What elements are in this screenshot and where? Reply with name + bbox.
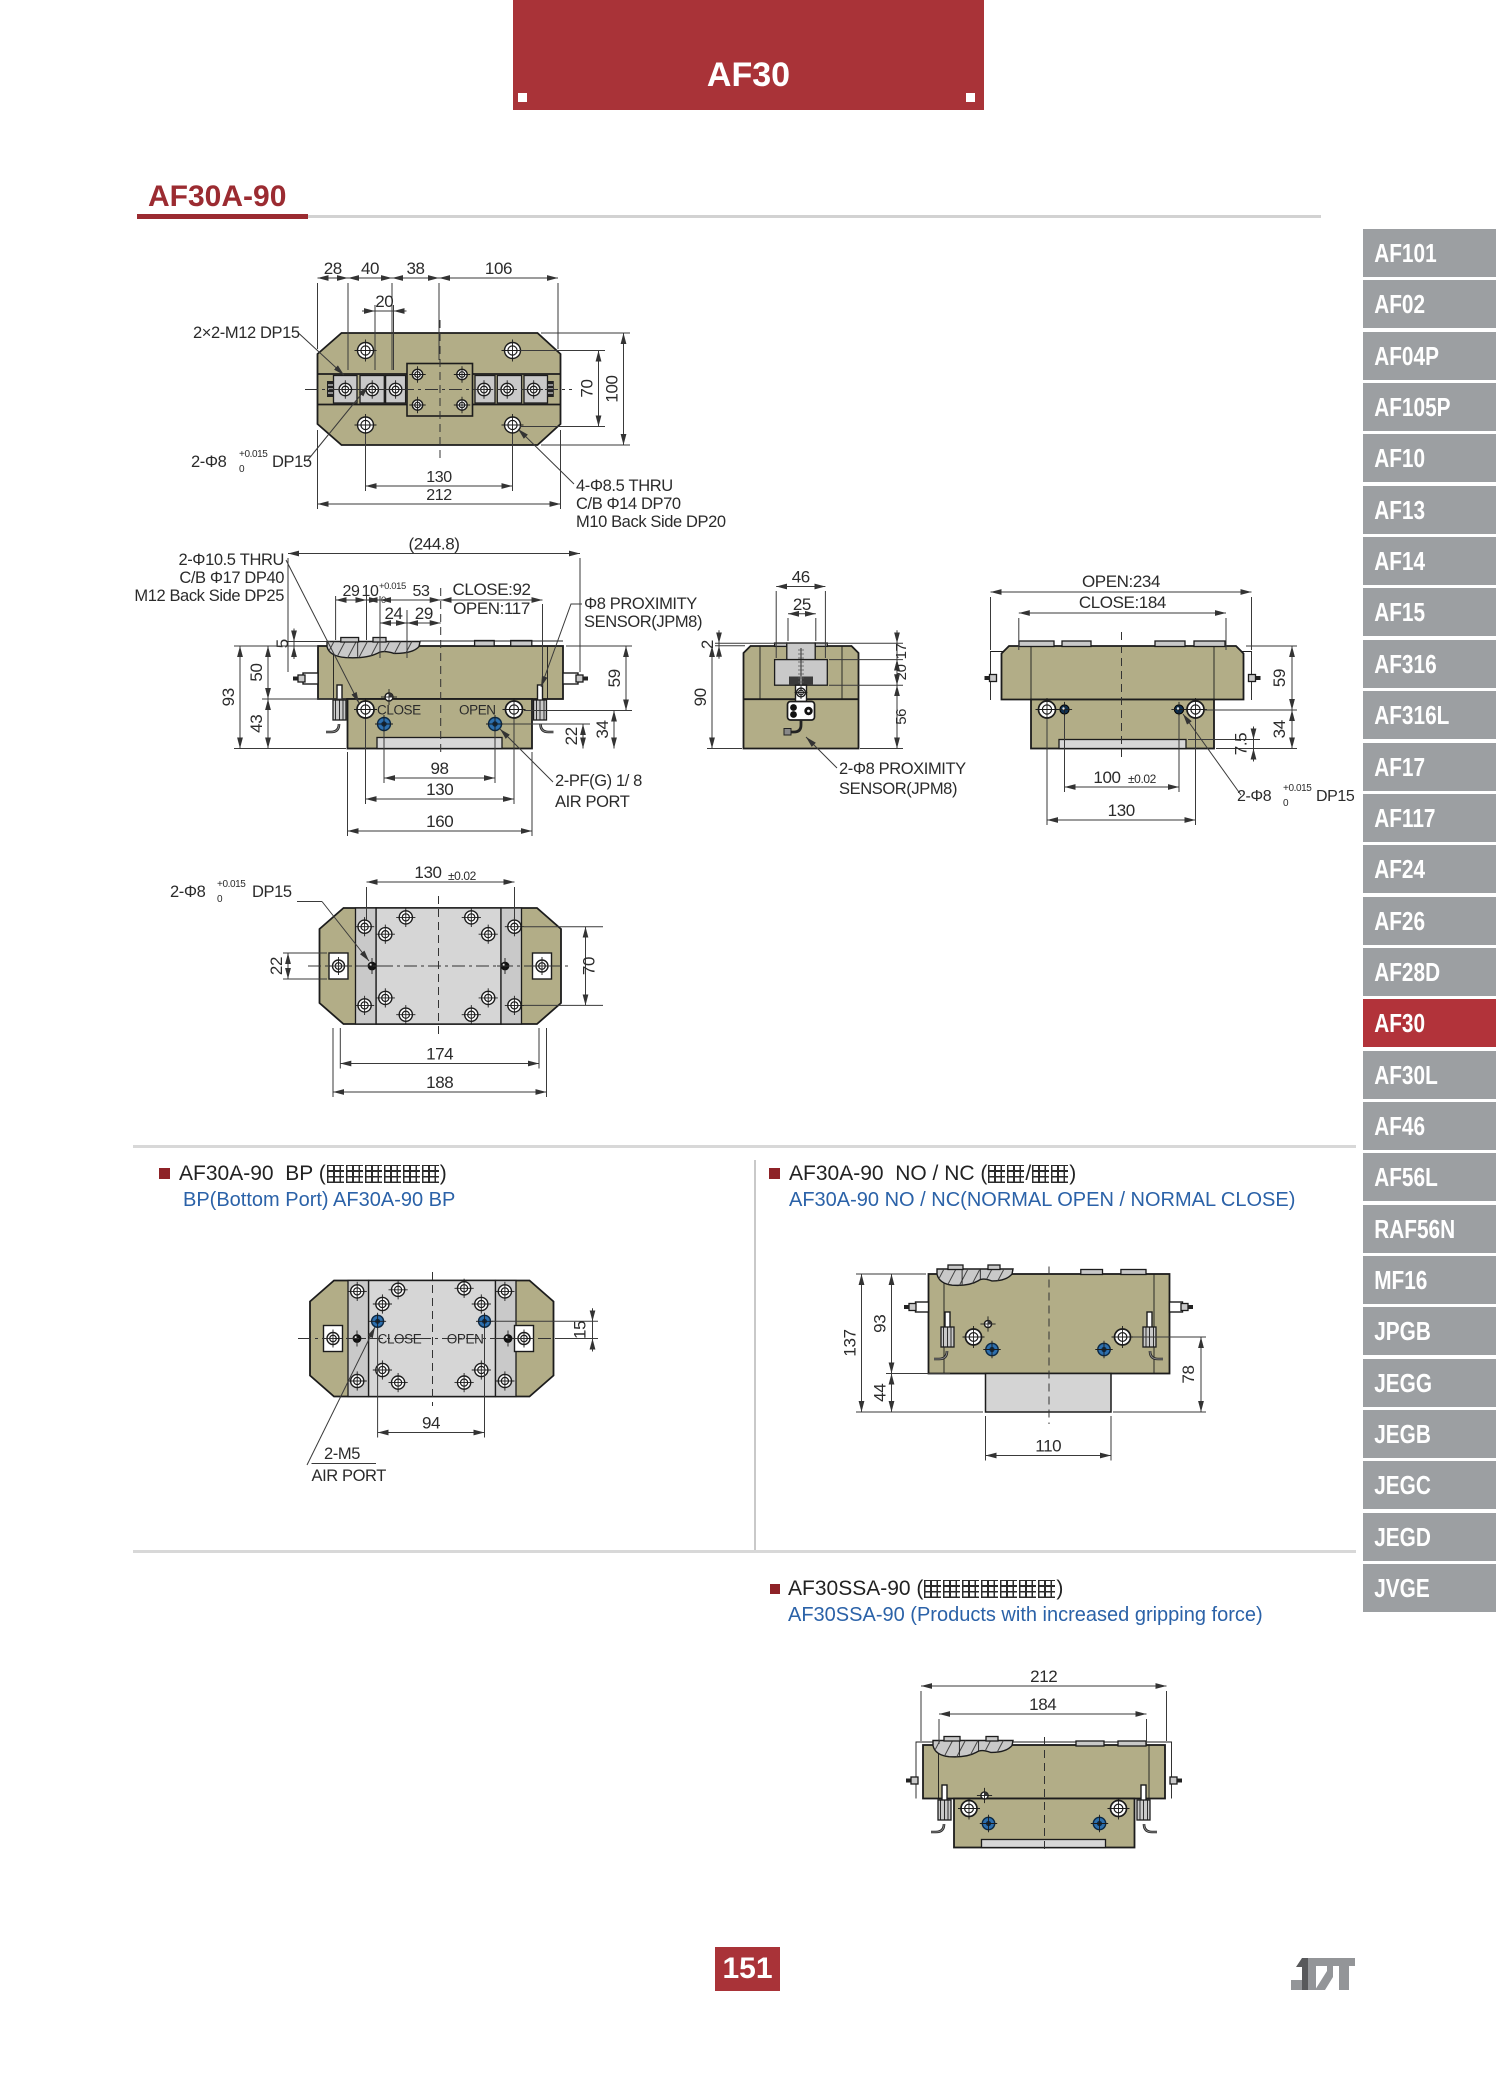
svg-text:DP15: DP15 <box>252 883 292 901</box>
svg-text:CLOSE:184: CLOSE:184 <box>1079 593 1166 612</box>
svg-text:160: 160 <box>426 812 453 831</box>
svg-text:4-Φ8.5 THRU: 4-Φ8.5 THRU <box>576 477 673 495</box>
svg-text:20: 20 <box>375 292 393 311</box>
svg-text:10: 10 <box>362 583 379 600</box>
svg-text:M10 Back Side DP20: M10 Back Side DP20 <box>576 513 726 531</box>
svg-text:93: 93 <box>871 1315 890 1333</box>
svg-text:106: 106 <box>485 259 512 278</box>
svg-text:OPEN: OPEN <box>459 703 496 718</box>
svg-text:100: 100 <box>1093 768 1120 787</box>
svg-text:2-Φ10.5 THRU: 2-Φ10.5 THRU <box>178 551 284 569</box>
svg-text:Φ8 PROXIMITY: Φ8 PROXIMITY <box>584 595 697 613</box>
svg-text:29: 29 <box>343 583 360 600</box>
svg-text:2: 2 <box>698 640 717 649</box>
svg-text:43: 43 <box>247 715 266 733</box>
svg-text:0: 0 <box>1283 798 1289 809</box>
svg-text:OPEN:117: OPEN:117 <box>453 599 530 618</box>
svg-text:137: 137 <box>841 1329 860 1356</box>
svg-text:AIR PORT: AIR PORT <box>555 793 630 811</box>
svg-text:+0.015: +0.015 <box>379 581 406 592</box>
svg-text:70: 70 <box>578 379 597 397</box>
svg-text:2-Φ8 PROXIMITY: 2-Φ8 PROXIMITY <box>839 760 966 778</box>
svg-text:174: 174 <box>426 1045 453 1064</box>
svg-text:+0.015: +0.015 <box>1283 783 1312 794</box>
svg-text:DP15: DP15 <box>272 453 312 471</box>
svg-text:59: 59 <box>1270 669 1289 687</box>
svg-text:C/B Φ17 DP40: C/B Φ17 DP40 <box>179 569 284 587</box>
svg-text:DP15: DP15 <box>1316 788 1355 805</box>
svg-text:212: 212 <box>1030 1667 1057 1686</box>
svg-text:OPEN:234: OPEN:234 <box>1082 572 1160 591</box>
svg-text:22: 22 <box>562 727 581 745</box>
svg-text:SENSOR(JPM8): SENSOR(JPM8) <box>584 613 702 631</box>
svg-text:29: 29 <box>415 604 433 623</box>
svg-text:98: 98 <box>430 759 448 778</box>
svg-text:70: 70 <box>580 957 599 975</box>
svg-text:CLOSE:92: CLOSE:92 <box>453 580 531 599</box>
svg-text:78: 78 <box>1179 1365 1198 1383</box>
svg-text:2-PF(G) 1/ 8: 2-PF(G) 1/ 8 <box>555 772 642 790</box>
svg-text:53: 53 <box>413 583 430 600</box>
svg-text:44: 44 <box>871 1384 890 1402</box>
svg-text:50: 50 <box>247 663 266 681</box>
svg-text:7.5: 7.5 <box>1232 733 1251 755</box>
svg-text:2-M5: 2-M5 <box>324 1445 360 1463</box>
svg-text:130: 130 <box>1108 801 1135 820</box>
svg-text:25: 25 <box>793 595 811 614</box>
svg-text:2-Φ8: 2-Φ8 <box>1237 788 1272 805</box>
svg-text:100: 100 <box>603 375 622 402</box>
svg-text:56: 56 <box>893 709 910 725</box>
svg-text:0: 0 <box>217 894 223 905</box>
svg-text:34: 34 <box>1270 720 1289 738</box>
svg-text:±0.02: ±0.02 <box>1128 772 1157 786</box>
svg-text:5: 5 <box>273 639 292 648</box>
svg-text:184: 184 <box>1029 1695 1056 1714</box>
svg-text:130: 130 <box>414 863 441 882</box>
svg-text:34: 34 <box>593 720 612 738</box>
svg-text:(244.8): (244.8) <box>408 535 459 554</box>
svg-text:+0.015: +0.015 <box>239 449 268 460</box>
svg-text:130: 130 <box>426 469 452 486</box>
svg-text:±0.02: ±0.02 <box>448 869 477 883</box>
svg-text:15: 15 <box>571 1321 590 1339</box>
svg-text:94: 94 <box>422 1414 440 1433</box>
svg-text:0: 0 <box>239 464 245 475</box>
svg-text:2-Φ8: 2-Φ8 <box>170 883 206 901</box>
svg-text:C/B Φ14 DP70: C/B Φ14 DP70 <box>576 495 681 513</box>
svg-text:SENSOR(JPM8): SENSOR(JPM8) <box>839 780 957 798</box>
svg-text:M12 Back Side DP25: M12 Back Side DP25 <box>134 587 284 605</box>
svg-text:2-Φ8: 2-Φ8 <box>191 453 227 471</box>
svg-text:46: 46 <box>792 568 810 587</box>
svg-text:40: 40 <box>361 259 379 278</box>
svg-text:93: 93 <box>219 688 238 706</box>
svg-text:28: 28 <box>324 259 342 278</box>
svg-text:90: 90 <box>691 688 710 706</box>
svg-text:130: 130 <box>426 780 453 799</box>
svg-text:AIR PORT: AIR PORT <box>312 1467 387 1485</box>
svg-text:110: 110 <box>1035 1437 1061 1456</box>
svg-text:20: 20 <box>893 664 910 680</box>
svg-text:2×2-M12 DP15: 2×2-M12 DP15 <box>193 324 300 342</box>
svg-text:24: 24 <box>384 604 402 623</box>
svg-text:17: 17 <box>893 643 910 659</box>
svg-text:38: 38 <box>406 259 424 278</box>
svg-text:+0.015: +0.015 <box>217 879 246 890</box>
svg-text:59: 59 <box>605 669 624 687</box>
svg-text:22: 22 <box>267 957 286 975</box>
svg-text:188: 188 <box>426 1073 453 1092</box>
svg-text:212: 212 <box>426 487 452 504</box>
